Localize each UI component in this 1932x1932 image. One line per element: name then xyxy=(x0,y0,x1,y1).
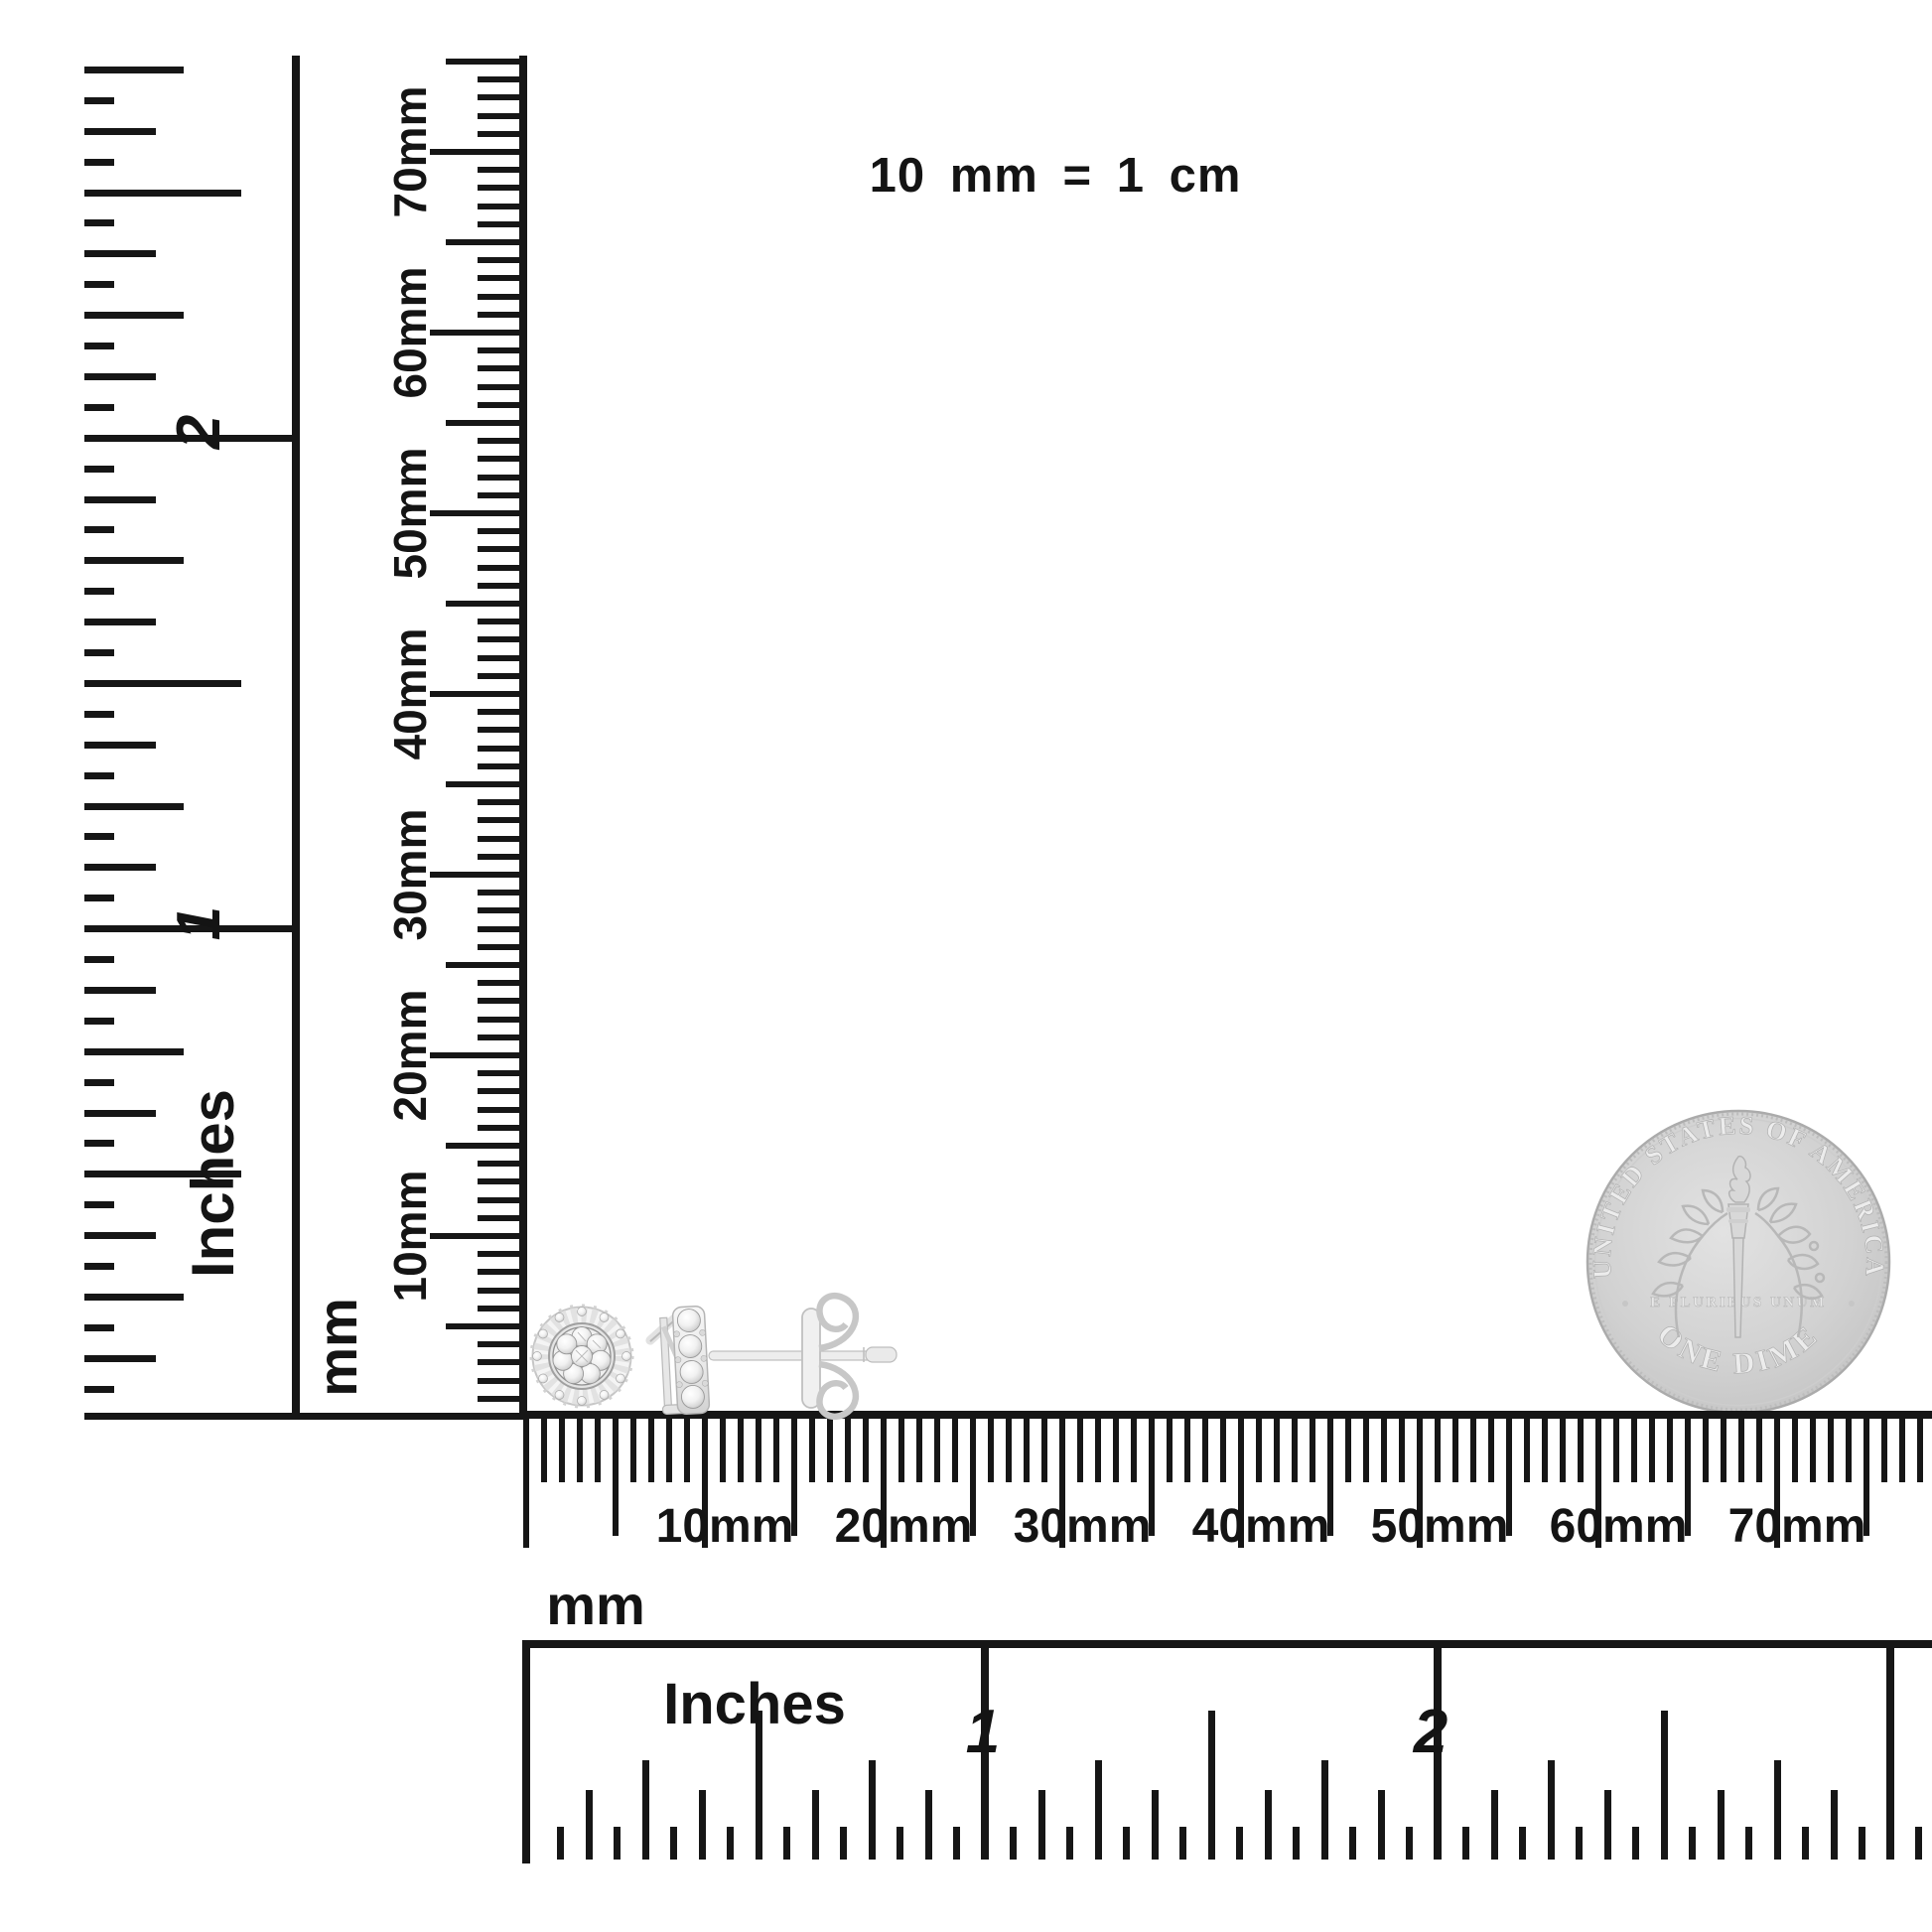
vertical-inches-ruler-tick xyxy=(84,619,156,625)
vertical-inches-ruler-tick xyxy=(84,219,114,226)
vertical-inches-ruler-tick xyxy=(84,1263,114,1270)
horizontal-inches-ruler-tick xyxy=(1802,1827,1809,1860)
horizontal-inches-ruler-tick xyxy=(1349,1827,1356,1860)
vertical-mm-ruler-tick xyxy=(446,781,519,787)
horizontal-mm-ruler-tick xyxy=(613,1419,619,1536)
horizontal-inches-ruler-tick xyxy=(1293,1827,1300,1860)
vertical-inches-ruler-tick xyxy=(84,1079,114,1086)
vertical-inches-ruler-tick xyxy=(84,159,114,166)
vertical-inches-ruler-tick xyxy=(84,526,114,533)
vertical-mm-ruler-tick xyxy=(446,1143,519,1149)
vertical-rulers-baseline xyxy=(84,1413,527,1420)
horizontal-mm-unit-label: mm xyxy=(511,1520,680,1689)
horizontal-inches-ruler-tick xyxy=(727,1827,734,1860)
horizontal-inches-ruler-tick xyxy=(869,1760,876,1860)
vertical-inches-ruler-tick xyxy=(84,1355,156,1362)
vertical-mm-ruler-tick xyxy=(446,59,519,65)
vertical-mm-ruler-tick xyxy=(446,239,519,245)
horizontal-mm-label-60: 60mm xyxy=(1534,1442,1703,1610)
vertical-mm-ruler-tick xyxy=(478,1341,519,1347)
vertical-inches-ruler-tick xyxy=(84,97,114,104)
vertical-inches-ruler-tick xyxy=(84,1140,114,1147)
vertical-inches-ruler-tick xyxy=(84,956,114,963)
horizontal-inches-ruler-tick xyxy=(1095,1760,1102,1860)
horizontal-inches-ruler-tick xyxy=(1236,1827,1243,1860)
vertical-inches-ruler-tick xyxy=(84,281,114,288)
horizontal-inches-ruler-tick xyxy=(1462,1827,1469,1860)
vertical-mm-label-50: 50mm xyxy=(326,429,494,598)
vertical-inches-ruler-tick xyxy=(84,67,184,73)
horizontal-inches-ruler-tick xyxy=(1576,1827,1583,1860)
horizontal-inches-ruler-tick xyxy=(783,1827,790,1860)
horizontal-mm-ruler-tick xyxy=(988,1419,994,1482)
vertical-inches-ruler-tick xyxy=(84,343,114,349)
horizontal-inches-ruler-tick xyxy=(1915,1827,1922,1860)
horizontal-inches-ruler-tick xyxy=(1548,1760,1555,1860)
horizontal-inches-ruler-tick xyxy=(1831,1790,1838,1860)
horizontal-mm-ruler-tick xyxy=(1524,1419,1530,1482)
vertical-inches-ruler-tick xyxy=(84,1018,114,1025)
earring-side-view xyxy=(648,1296,897,1417)
horizontal-mm-label-40: 40mm xyxy=(1176,1442,1345,1610)
vertical-inches-ruler-tick xyxy=(84,1201,114,1208)
vertical-mm-unit-label: mm xyxy=(252,1263,421,1432)
vertical-inches-ruler-tick xyxy=(84,742,156,749)
horizontal-inches-ruler-tick xyxy=(1774,1760,1781,1860)
horizontal-inches-ruler-tick xyxy=(1689,1827,1696,1860)
horizontal-mm-ruler-tick xyxy=(1917,1419,1923,1482)
horizontal-inches-ruler-tick xyxy=(1066,1827,1073,1860)
vertical-inches-ruler-tick xyxy=(84,711,114,718)
vertical-mm-ruler-tick xyxy=(446,962,519,968)
horizontal-inches-ruler-tick xyxy=(614,1827,621,1860)
vertical-inches-ruler-tick xyxy=(84,588,114,595)
horizontal-inches-ruler-tick xyxy=(1010,1827,1017,1860)
vertical-inches-ruler-tick xyxy=(84,680,241,687)
horizontal-mm-label-50: 50mm xyxy=(1355,1442,1524,1610)
horizontal-inches-ruler-tick xyxy=(1179,1827,1186,1860)
earring-post xyxy=(709,1351,872,1360)
vertical-mm-label-60: 60mm xyxy=(326,248,494,417)
vertical-mm-label-40: 40mm xyxy=(326,610,494,778)
horizontal-inches-ruler-inch-tick xyxy=(1886,1648,1894,1860)
vertical-mm-label-70: 70mm xyxy=(326,68,494,236)
horizontal-inches-ruler-tick xyxy=(1152,1790,1159,1860)
vertical-mm-ruler-tick xyxy=(446,601,519,607)
horizontal-inches-ruler-tick xyxy=(1661,1711,1668,1860)
horizontal-inches-ruler-tick xyxy=(1519,1827,1526,1860)
vertical-mm-ruler-tick xyxy=(446,420,519,426)
horizontal-inches-ruler-tick xyxy=(1718,1790,1725,1860)
horizontal-inches-ruler-tick xyxy=(586,1790,593,1860)
vertical-inches-ruler-tick xyxy=(84,772,114,779)
horizontal-mm-ruler-tick xyxy=(1345,1419,1351,1482)
horizontal-inches-ruler-tick xyxy=(1321,1760,1328,1860)
horizontal-inches-ruler-tick xyxy=(812,1790,819,1860)
horizontal-mm-ruler-tick xyxy=(1881,1419,1887,1482)
horizontal-inches-ruler-tick xyxy=(642,1760,649,1860)
horizontal-inches-ruler-tick xyxy=(897,1827,903,1860)
vertical-inches-ruler-tick xyxy=(84,1294,184,1301)
vertical-inches-ruler-tick xyxy=(84,649,114,656)
vertical-mm-label-20: 20mm xyxy=(326,971,494,1140)
vertical-mm-ruler-tick xyxy=(478,1378,519,1384)
horizontal-mm-label-70: 70mm xyxy=(1713,1442,1881,1610)
horizontal-inches-ruler-tick xyxy=(1632,1827,1639,1860)
vertical-inches-label-2: 2 xyxy=(114,347,283,516)
earrings xyxy=(516,1281,933,1430)
horizontal-inches-ruler-tick xyxy=(557,1827,564,1860)
vertical-inches-ruler-tick xyxy=(84,190,241,197)
horizontal-inches-ruler-tick xyxy=(1265,1790,1272,1860)
earring-post-tip xyxy=(866,1347,897,1362)
vertical-mm-label-30: 30mm xyxy=(326,790,494,959)
horizontal-mm-ruler-tick xyxy=(1899,1419,1905,1482)
vertical-mm-ruler-tick xyxy=(478,1396,519,1402)
vertical-inches-ruler-tick xyxy=(84,557,184,564)
earring-front-view xyxy=(531,1306,632,1407)
horizontal-mm-label-30: 30mm xyxy=(998,1442,1167,1610)
horizontal-inches-ruler-tick xyxy=(1604,1790,1611,1860)
vertical-inches-ruler-tick xyxy=(84,833,114,840)
horizontal-mm-ruler-tick xyxy=(1703,1419,1709,1482)
horizontal-inches-ruler-tick xyxy=(1406,1827,1413,1860)
vertical-inches-ruler-tick xyxy=(84,803,184,810)
horizontal-inches-ruler-left-edge xyxy=(522,1640,530,1863)
horizontal-inches-ruler-tick xyxy=(1859,1827,1865,1860)
vertical-inches-ruler-tick xyxy=(84,1386,114,1393)
vertical-mm-ruler-tick xyxy=(478,1359,519,1365)
ruler-layer: 12Inches10mm20mm30mm40mm50mm60mm70mmmm10… xyxy=(0,0,1932,1932)
vertical-inches-unit-label: Inches xyxy=(128,1099,297,1268)
horizontal-inches-label-2: 2 xyxy=(1346,1647,1515,1816)
horizontal-inches-ruler-tick xyxy=(1208,1711,1215,1860)
vertical-inches-ruler-tick xyxy=(84,250,156,257)
vertical-inches-ruler-tick xyxy=(84,312,184,319)
vertical-inches-ruler-tick xyxy=(84,128,156,135)
vertical-inches-ruler-tick xyxy=(84,404,114,411)
horizontal-inches-ruler-tick xyxy=(670,1827,677,1860)
horizontal-inches-ruler-tick xyxy=(699,1790,706,1860)
horizontal-inches-ruler-tick xyxy=(953,1827,960,1860)
horizontal-inches-ruler-tick xyxy=(840,1827,847,1860)
vertical-inches-ruler-tick xyxy=(84,1324,114,1331)
vertical-mm-ruler-tick xyxy=(446,1323,519,1329)
vertical-mm-ruler-spine xyxy=(519,56,527,1420)
horizontal-mm-label-20: 20mm xyxy=(819,1442,988,1610)
horizontal-inches-unit-label: Inches xyxy=(670,1619,839,1788)
vertical-inches-ruler-tick xyxy=(84,1048,184,1055)
vertical-inches-ruler-tick xyxy=(84,895,114,901)
vertical-inches-ruler-tick xyxy=(84,466,114,473)
horizontal-mm-ruler-tick xyxy=(1167,1419,1173,1482)
horizontal-inches-label-1: 1 xyxy=(898,1647,1067,1816)
horizontal-inches-ruler-tick xyxy=(1745,1827,1752,1860)
horizontal-inches-ruler-tick xyxy=(1123,1827,1130,1860)
vertical-inches-label-1: 1 xyxy=(114,839,283,1008)
product-scale-photo: 10 mm = 1 cm UNITED STATES OF AMERICA ON… xyxy=(0,0,1932,1932)
